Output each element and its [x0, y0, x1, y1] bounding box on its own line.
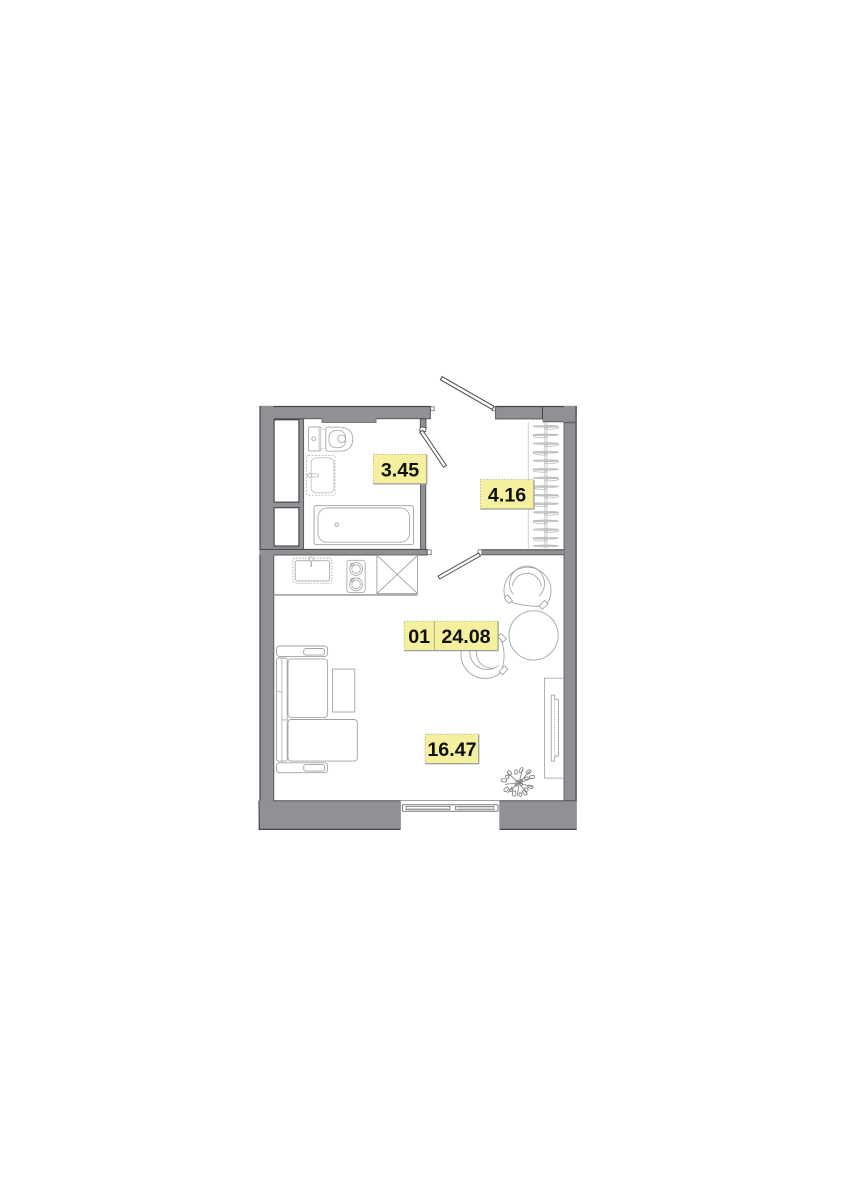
svg-text:4.16: 4.16 — [488, 485, 526, 507]
svg-text:24.08: 24.08 — [441, 626, 490, 648]
svg-text:01: 01 — [408, 626, 430, 648]
svg-text:16.47: 16.47 — [427, 739, 476, 761]
svg-text:3.45: 3.45 — [381, 459, 419, 481]
